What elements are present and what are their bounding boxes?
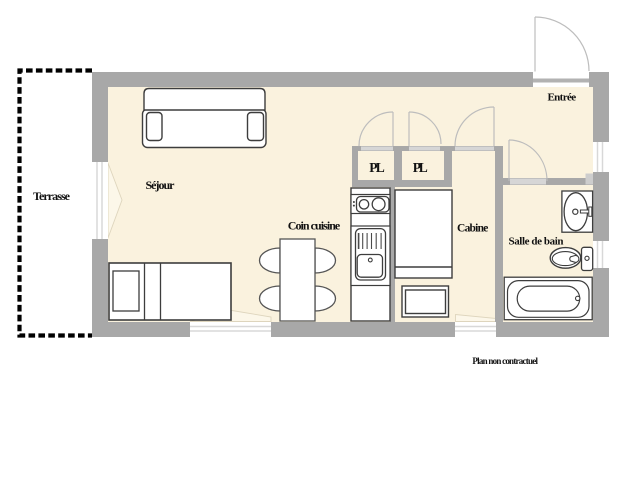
svg-text:Terrasse: Terrasse: [33, 189, 71, 203]
svg-text:PL: PL: [413, 160, 428, 175]
svg-text:Salle de bain: Salle de bain: [509, 236, 564, 248]
svg-text:Entrée: Entrée: [547, 92, 576, 104]
svg-text:Séjour: Séjour: [146, 178, 176, 192]
svg-text:Cabine: Cabine: [457, 223, 488, 235]
svg-text:Plan non contractuel: Plan non contractuel: [472, 356, 538, 366]
svg-text:PL: PL: [369, 160, 385, 175]
svg-text:Coin cuisine: Coin cuisine: [288, 218, 341, 232]
